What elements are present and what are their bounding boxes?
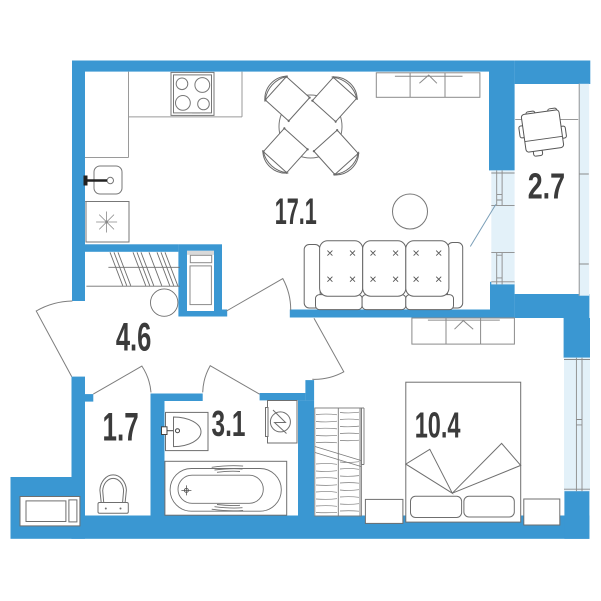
svg-text:2.7: 2.7 [528, 166, 565, 207]
svg-text:4.6: 4.6 [116, 316, 151, 360]
svg-text:3.1: 3.1 [212, 403, 246, 444]
svg-text:17.1: 17.1 [275, 191, 317, 233]
svg-text:10.4: 10.4 [415, 406, 461, 446]
svg-text:1.7: 1.7 [103, 406, 139, 450]
